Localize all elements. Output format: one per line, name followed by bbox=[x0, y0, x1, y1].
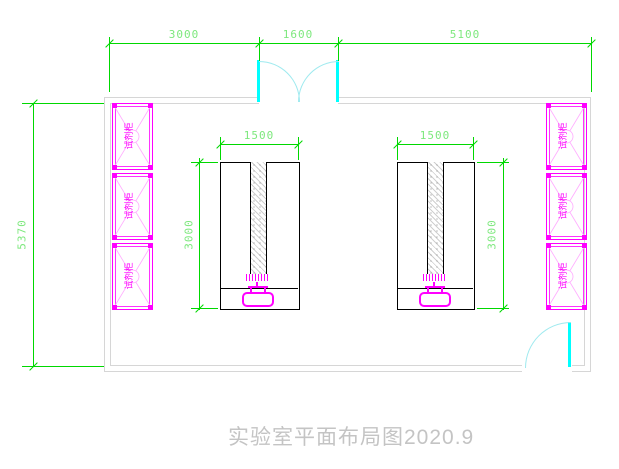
extension-line bbox=[473, 137, 474, 160]
bench-divider-right bbox=[397, 288, 473, 289]
extension-line bbox=[191, 162, 218, 163]
cabinet-label: 试剂柜 bbox=[558, 186, 570, 226]
sink-icon-left bbox=[242, 292, 274, 307]
dimension-line-top bbox=[109, 43, 592, 44]
dim-label-room-width-2: 5100 bbox=[435, 28, 495, 41]
extension-line bbox=[109, 37, 110, 92]
cabinet-label: 试剂柜 bbox=[558, 256, 570, 296]
dim-label-bench-width: 1500 bbox=[229, 129, 289, 142]
dimension-line-bench-left-depth bbox=[199, 158, 200, 310]
dim-label-bench-depth: 3000 bbox=[486, 205, 499, 265]
dimension-line-bench-left-width bbox=[220, 144, 298, 145]
dim-label-door-width: 1600 bbox=[268, 28, 328, 41]
door-swing-arc-right bbox=[298, 61, 339, 102]
extension-line bbox=[298, 137, 299, 160]
floor-plan-canvas: 试剂柜 试剂柜 试剂柜 bbox=[0, 0, 619, 469]
door-swing-arc-left bbox=[259, 61, 300, 102]
reagent-shelf-strip-right bbox=[427, 162, 444, 274]
extension-line bbox=[191, 308, 218, 309]
cabinet-label: 试剂柜 bbox=[124, 116, 136, 156]
wall-inner-outline bbox=[110, 103, 585, 366]
extension-line bbox=[397, 137, 398, 160]
dim-label-room-width-1: 3000 bbox=[154, 28, 214, 41]
sink-icon-right bbox=[419, 292, 451, 307]
drawing-title: 实验室平面布局图2020.9 bbox=[228, 421, 474, 451]
reagent-shelf-strip-left bbox=[250, 162, 267, 274]
drip-rack-icon-right bbox=[423, 274, 446, 281]
dim-label-room-height: 5370 bbox=[16, 205, 29, 265]
dim-label-bench-depth: 3000 bbox=[183, 205, 196, 265]
dim-label-bench-width: 1500 bbox=[405, 129, 465, 142]
extension-line bbox=[591, 37, 592, 92]
dimension-line-bench-right-depth bbox=[503, 158, 504, 310]
drip-rack-icon-left bbox=[246, 274, 269, 281]
cabinet-label: 试剂柜 bbox=[124, 186, 136, 226]
bench-divider-left bbox=[220, 288, 298, 289]
extension-line bbox=[220, 137, 221, 160]
dimension-line-left bbox=[33, 103, 34, 367]
dimension-line-bench-right-width bbox=[397, 144, 473, 145]
cabinet-label: 试剂柜 bbox=[124, 256, 136, 296]
cabinet-label: 试剂柜 bbox=[558, 116, 570, 156]
